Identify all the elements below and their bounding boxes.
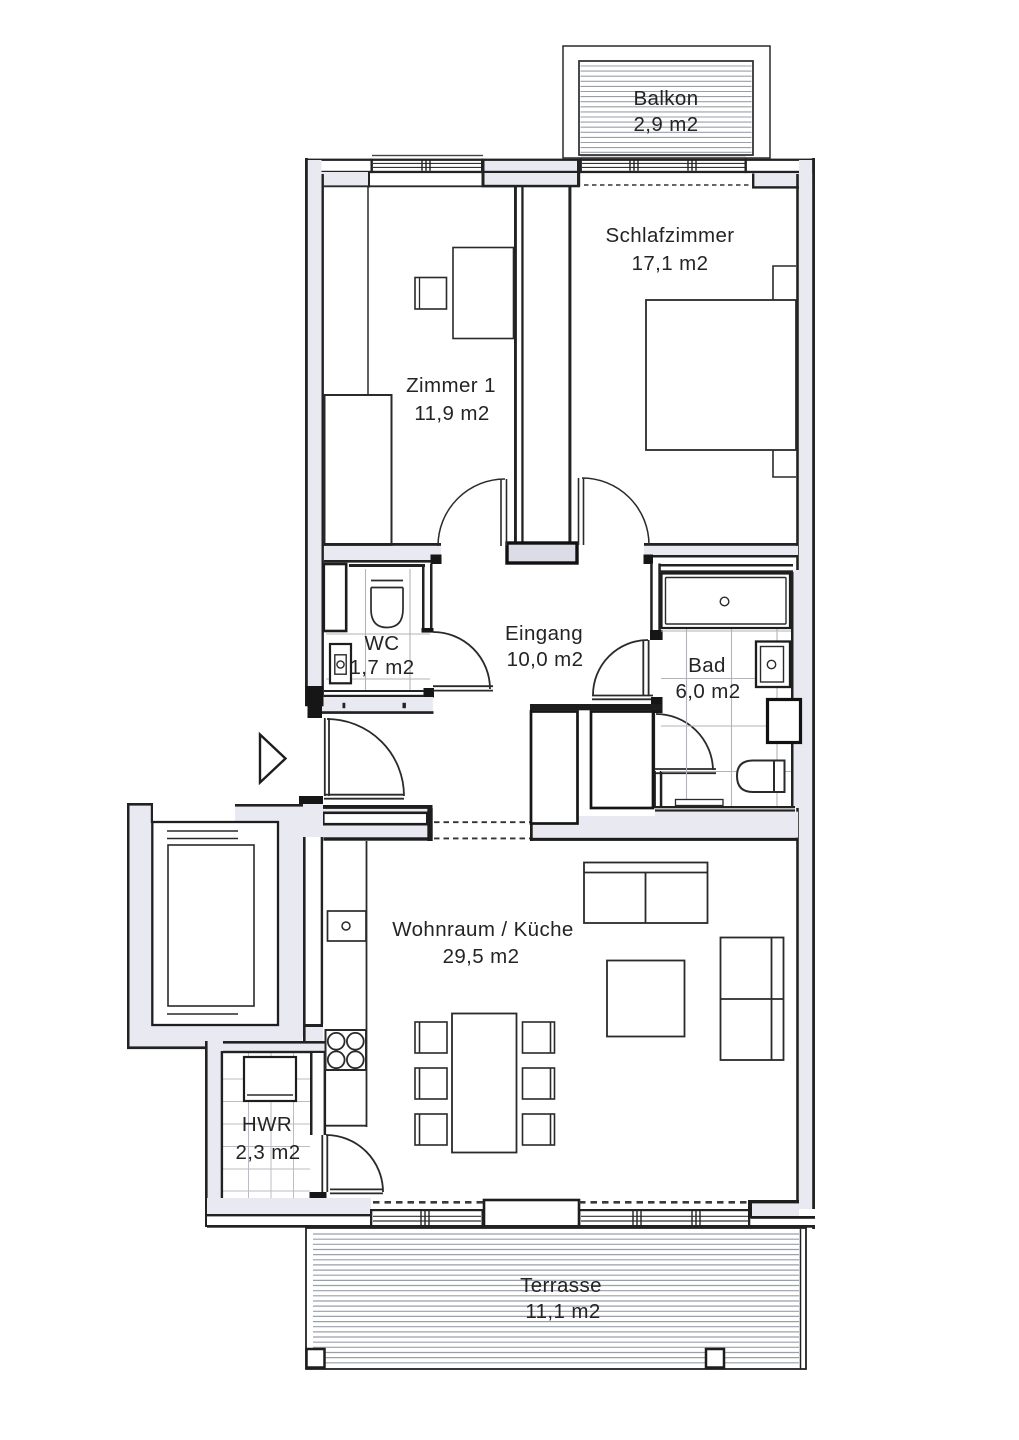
svg-text:11,9 m2: 11,9 m2	[414, 402, 489, 425]
svg-text:17,1 m2: 17,1 m2	[632, 252, 709, 275]
svg-text:Bad: Bad	[688, 654, 726, 677]
svg-text:6,0 m2: 6,0 m2	[675, 680, 740, 703]
svg-text:Terrasse: Terrasse	[520, 1274, 602, 1297]
svg-text:2,9 m2: 2,9 m2	[633, 113, 698, 136]
svg-text:Wohnraum / Küche: Wohnraum / Küche	[392, 918, 574, 941]
svg-text:Eingang: Eingang	[505, 622, 583, 645]
svg-text:HWR: HWR	[242, 1113, 292, 1136]
svg-text:2,3 m2: 2,3 m2	[235, 1141, 300, 1164]
svg-text:11,1 m2: 11,1 m2	[525, 1300, 600, 1323]
svg-text:1,7 m2: 1,7 m2	[349, 656, 414, 679]
svg-text:Zimmer 1: Zimmer 1	[406, 374, 496, 397]
svg-text:Schlafzimmer: Schlafzimmer	[606, 224, 735, 247]
svg-text:29,5 m2: 29,5 m2	[443, 945, 520, 968]
svg-text:WC: WC	[365, 632, 400, 655]
svg-text:10,0 m2: 10,0 m2	[507, 648, 584, 671]
svg-text:Balkon: Balkon	[633, 87, 698, 110]
